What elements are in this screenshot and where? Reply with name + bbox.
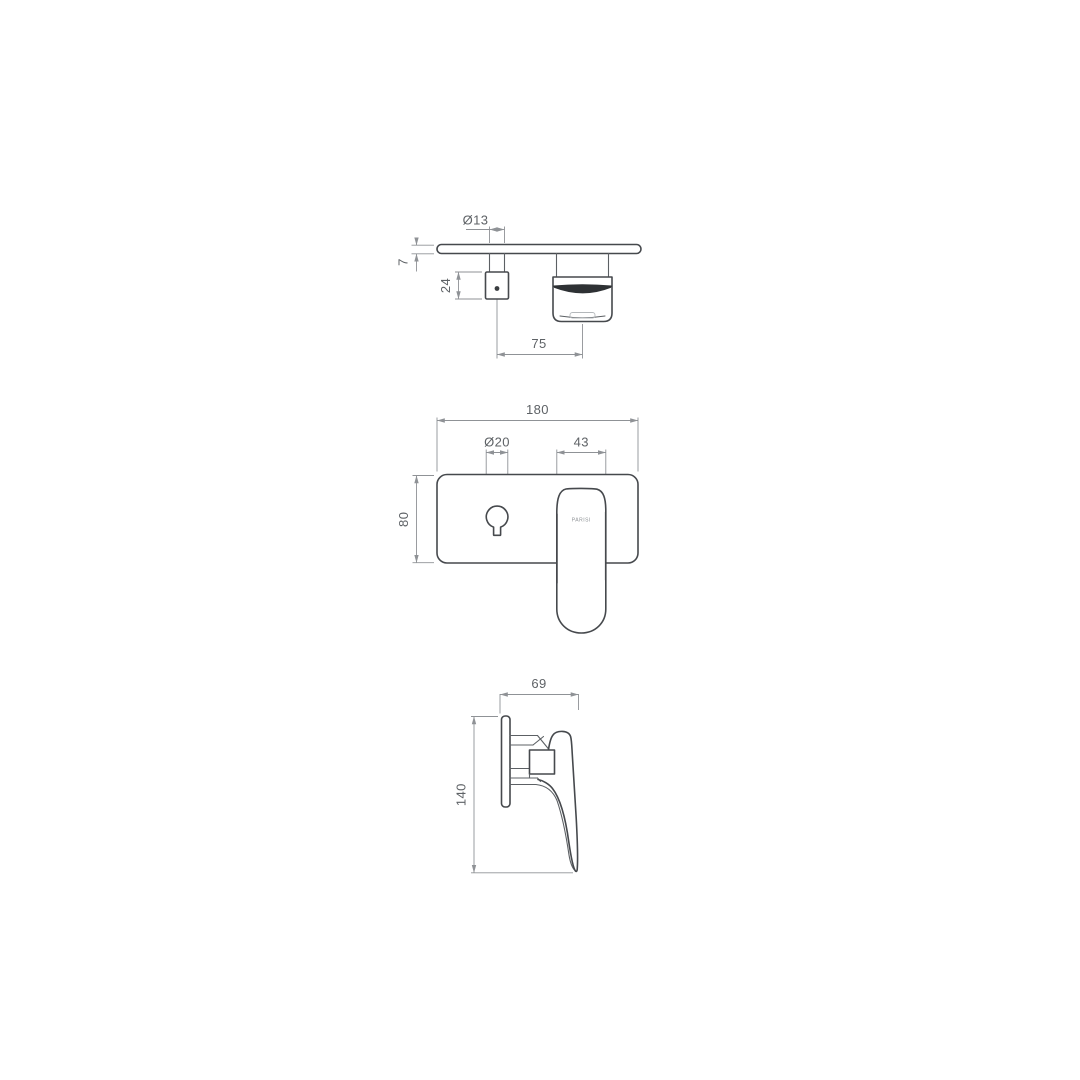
dim-plate-thickness: 7	[396, 239, 435, 272]
handle-front	[557, 488, 606, 633]
mixer-body-side	[510, 736, 576, 872]
wall-plate-side	[502, 716, 511, 807]
wall-plate-top	[437, 245, 641, 254]
dim-spout-diameter: Ø13	[463, 213, 505, 244]
dim-depth: 69	[500, 676, 579, 714]
wall-plate-front	[437, 475, 638, 564]
dim-spout-block-depth: 24	[438, 272, 482, 299]
dim-label-handle-width: 43	[574, 435, 589, 450]
dim-label-plate-height: 80	[396, 512, 411, 527]
dim-label-spout-diameter: Ø13	[463, 213, 489, 228]
cartridge-block-side	[530, 750, 555, 774]
dim-plate-height: 80	[396, 476, 434, 563]
dim-label-spout-block-depth: 24	[438, 278, 453, 293]
spout-neck-top	[490, 254, 505, 273]
handle-neck-top	[557, 254, 609, 278]
mixer-technical-drawing: Ø13 7 24 75	[0, 0, 1080, 1080]
dim-label-spout-to-handle: 75	[531, 336, 546, 351]
dim-label-hole-diameter: Ø20	[484, 435, 510, 450]
spout-block-top	[486, 272, 509, 299]
handle-head-top	[553, 277, 612, 322]
top-view: Ø13 7 24 75	[396, 213, 642, 359]
aerator-dot	[495, 286, 500, 291]
dim-label-plate-width: 180	[526, 402, 549, 417]
dim-overall-height: 140	[454, 717, 574, 873]
dim-label-depth: 69	[531, 676, 546, 691]
body-underside-line	[510, 785, 576, 872]
front-view: 180 Ø20 43 80 PARISI	[396, 402, 638, 633]
dim-label-plate-thickness: 7	[396, 258, 411, 266]
handle-brand-label: PARISI	[572, 518, 591, 524]
dim-label-overall-height: 140	[454, 783, 469, 806]
dim-plate-width: 180	[437, 402, 638, 472]
side-view: 69 140	[454, 676, 579, 873]
technical-drawing-canvas: Ø13 7 24 75	[0, 0, 1080, 1080]
